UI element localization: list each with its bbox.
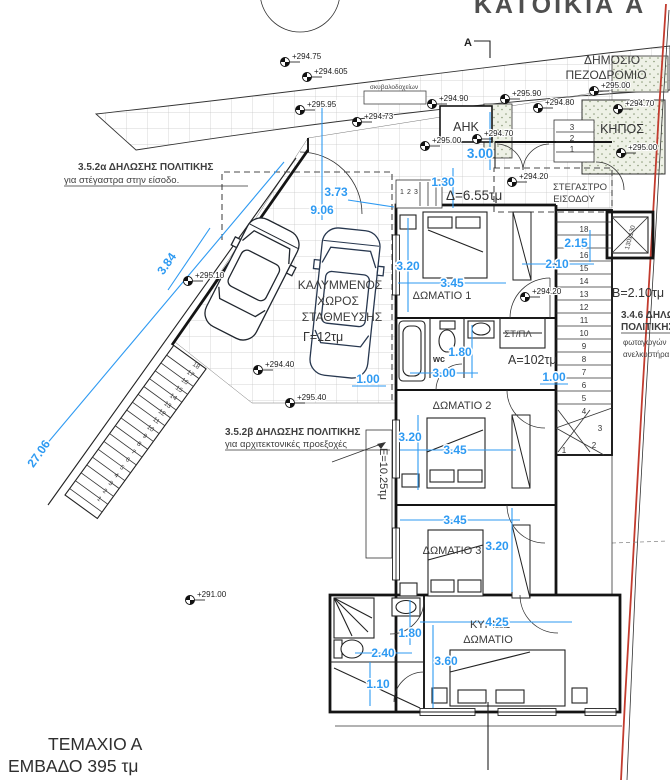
dim-m110: 1.10 [366,677,390,691]
elevation-value: +294.20 [532,287,562,296]
svg-text:15: 15 [580,264,589,273]
dim-100-hall: 1.00 [542,370,566,384]
elevation-value: +295.00 [601,81,631,90]
note3-line2: ΠΟΛΙΤΙΚΗΣ [621,322,670,333]
elevation-value: +295.90 [512,89,542,98]
svg-text:15: 15 [174,384,184,394]
detail-bubble [260,0,340,32]
entry-step-2: 2 [407,189,411,196]
note3-line4: ανελκυστήρα [623,350,670,359]
dim-m360: 3.60 [434,654,458,668]
garden-step-1: 1 [570,145,575,154]
dim-100-park: 1.00 [356,372,380,386]
parcel-area: ΕΜΒΑΔΟ 395 τμ [8,756,138,776]
garden-step-3: 3 [570,123,575,132]
elevation-value: +294.90 [439,94,469,103]
drawing-title: ΚΑΤΟΙΚΙΑ Α [474,0,646,19]
note1-title: 3.5.2α ΔΗΛΩΣΗΣ ΠΟΛΙΤΙΚΗΣ [78,162,213,173]
svg-text:12: 12 [157,408,167,418]
dim-130: 1.30 [431,175,455,189]
elevation-value: +294.73 [364,112,394,121]
dim-wc-width: 1.80 [448,345,472,359]
svg-text:9: 9 [582,342,587,351]
svg-text:16: 16 [180,377,190,387]
laundry-label: ΣΤ/ΠΛ [504,329,532,340]
svg-text:1: 1 [562,446,567,455]
dim-210: 2.10 [545,257,569,271]
svg-text:7: 7 [582,368,587,377]
elevation-value: +294.40 [265,360,295,369]
wc-label: wc [432,354,445,364]
sidewalk-label-2: ΠΕΖΟΔΡΟΜΙΟ [565,68,646,82]
dim-r3-width: 3.20 [485,539,509,553]
elevation-value: +295.95 [307,100,337,109]
svg-text:14: 14 [580,277,589,286]
note1-body: για στέγαστρα στην είσοδο. [64,175,179,186]
entry-step-3: 3 [414,189,418,196]
dim-wc-length: 3.00 [432,366,456,380]
room1-label: ΔΩΜΑΤΙΟ 1 [413,290,472,302]
dim-plot2: 3.84 [154,250,179,277]
svg-text:17: 17 [185,369,195,379]
garden-step-2: 2 [570,134,575,143]
svg-text:11: 11 [151,416,161,426]
parking-area-label: Γ=12τμ [303,330,343,344]
bins-label: σκυβαλοδοχείων [370,83,418,91]
room2-label: ΔΩΜΑΤΙΟ 2 [433,400,492,412]
ahk-label: ΑΗΚ [453,120,479,134]
svg-text:10: 10 [580,329,589,338]
parking-label-3: ΣΤΑΘΜΕΥΣΗΣ [302,310,382,324]
area-d-label: Δ=6.55τμ [446,188,502,203]
bins-niche [364,91,426,104]
elevation-value: +294.20 [519,172,549,181]
elevation-value: +295.00 [432,136,462,145]
dim-r23: 3.45 [443,513,467,527]
dim-906: 9.06 [310,203,334,217]
svg-text:13: 13 [580,290,589,299]
svg-text:11: 11 [580,316,589,325]
sidewalk-label-1: ΔΗΜΟΣΙΟ [584,53,640,67]
svg-text:14: 14 [168,392,178,402]
canopy-label-2: ΕΙΣΟΔΟΥ [553,194,595,205]
svg-text:18: 18 [580,225,589,234]
area-e-label: Ε=10.25τμ [377,448,389,500]
elevation-value: +295.10 [195,271,225,280]
elevation-marker: +291.00 [186,590,227,605]
room3-label: ΔΩΜΑΤΙΟ 3 [423,545,482,557]
garden-area [582,100,665,174]
floor-plan-drawing: 123456789101112131415161718 181716151413… [0,0,670,780]
elevation-value: +294.605 [314,67,348,76]
dim-m180: 1.80 [398,626,422,640]
dim-373: 3.73 [324,185,348,199]
entry-step-1: 1 [400,189,404,196]
svg-text:18: 18 [191,361,201,371]
elevation-value: +295.40 [297,393,327,402]
setback-line [612,541,668,543]
elevation-value: +294.75 [292,52,322,61]
note2-body: για αρχιτεκτονικές προεξοχές [225,439,347,450]
dim-300-entry: 3.00 [467,146,493,161]
svg-text:13: 13 [162,400,172,410]
architectural-plan-page: 123456789101112131415161718 181716151413… [0,0,670,780]
svg-text:16: 16 [580,251,589,260]
dim-r2-length: 3.45 [443,443,467,457]
dim-master-length: 4.25 [485,615,509,629]
elevation-value: +295.00 [628,143,658,152]
canopy-label-1: ΣΤΕΓΑΣΤΡΟ [553,182,607,193]
dim-r1-length: 3.45 [440,276,464,290]
area-b-label: Β=2.10τμ [612,286,664,300]
dim-m240: 2.40 [371,646,395,660]
elevation-marker: +294.605 [303,67,349,82]
svg-text:10: 10 [145,424,155,434]
elevation-value: +294.80 [545,98,575,107]
dim-r2-width: 3.20 [398,430,422,444]
elevation-value: +294.70 [625,99,655,108]
note3-line3: φωταγωγών [623,338,666,347]
garden-label: ΚΗΠΟΣ [600,122,644,136]
parking-label-2: ΧΩΡΟΣ [317,294,359,308]
svg-text:2: 2 [592,441,597,450]
parcel-name: ΤΕΜΑΧΙΟ Α [48,734,143,754]
dim-r1-width: 3.20 [396,259,420,273]
exterior-stair: 123456789101112131415161718 [65,345,206,518]
area-a-label: Α=102τμ [508,353,557,367]
section-mark-label: A [464,37,472,49]
svg-text:6: 6 [582,381,587,390]
note3-line1: 3.4.6 ΔΗΛΩ [621,310,670,321]
svg-text:12: 12 [580,303,589,312]
master-label-2: ΔΩΜΑΤΙΟ [463,634,513,646]
svg-text:3: 3 [598,424,603,433]
elevation-value: +291.00 [197,590,227,599]
elevation-marker: +294.75 [281,52,322,67]
elevation-value: +294.70 [484,129,514,138]
svg-text:8: 8 [582,355,587,364]
note2-title: 3.5.2β ΔΗΛΩΣΗΣ ΠΟΛΙΤΙΚΗΣ [225,427,360,438]
parking-label-1: ΚΑΛΥΜΜΕΝΟΣ [298,278,383,292]
svg-text:5: 5 [582,394,587,403]
lift-size-label: 130x130 [624,224,637,250]
dim-215: 2.15 [564,236,588,250]
